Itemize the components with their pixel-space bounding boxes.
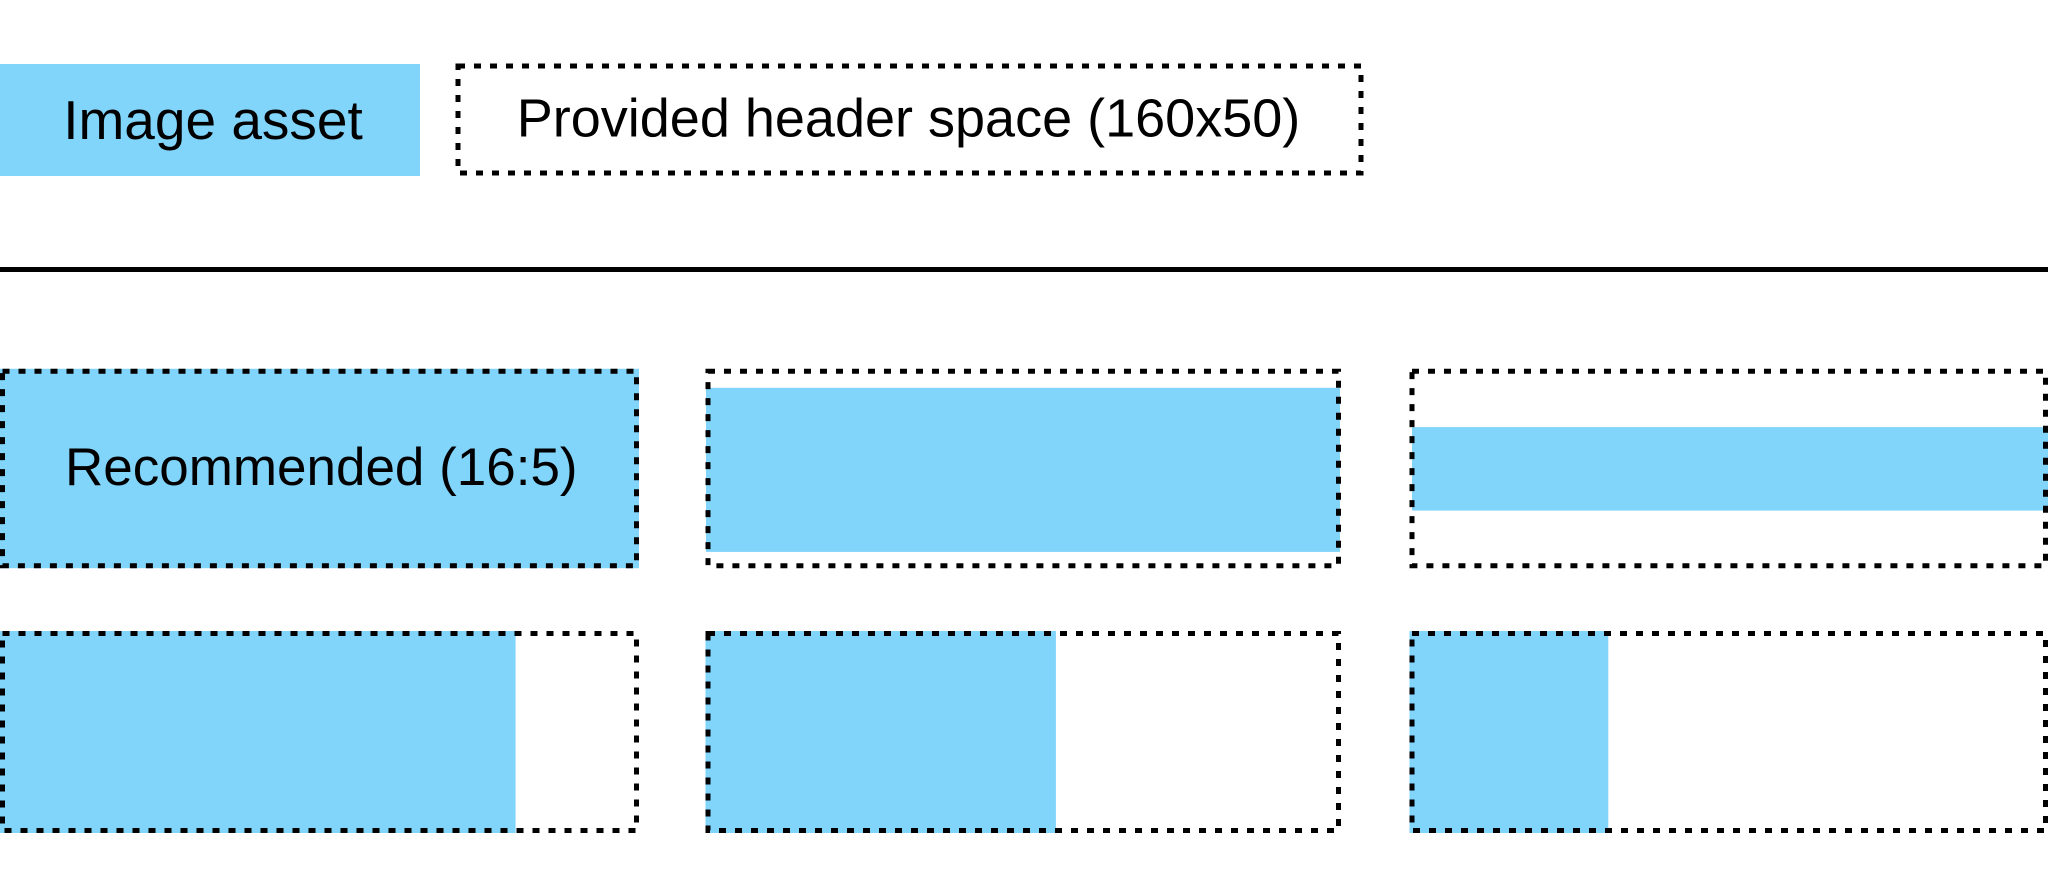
svg-text:Image asset: Image asset (63, 89, 363, 151)
svg-text:Provided header space (160x50): Provided header space (160x50) (517, 89, 1301, 149)
svg-text:Recommended (16:5): Recommended (16:5) (65, 438, 578, 497)
